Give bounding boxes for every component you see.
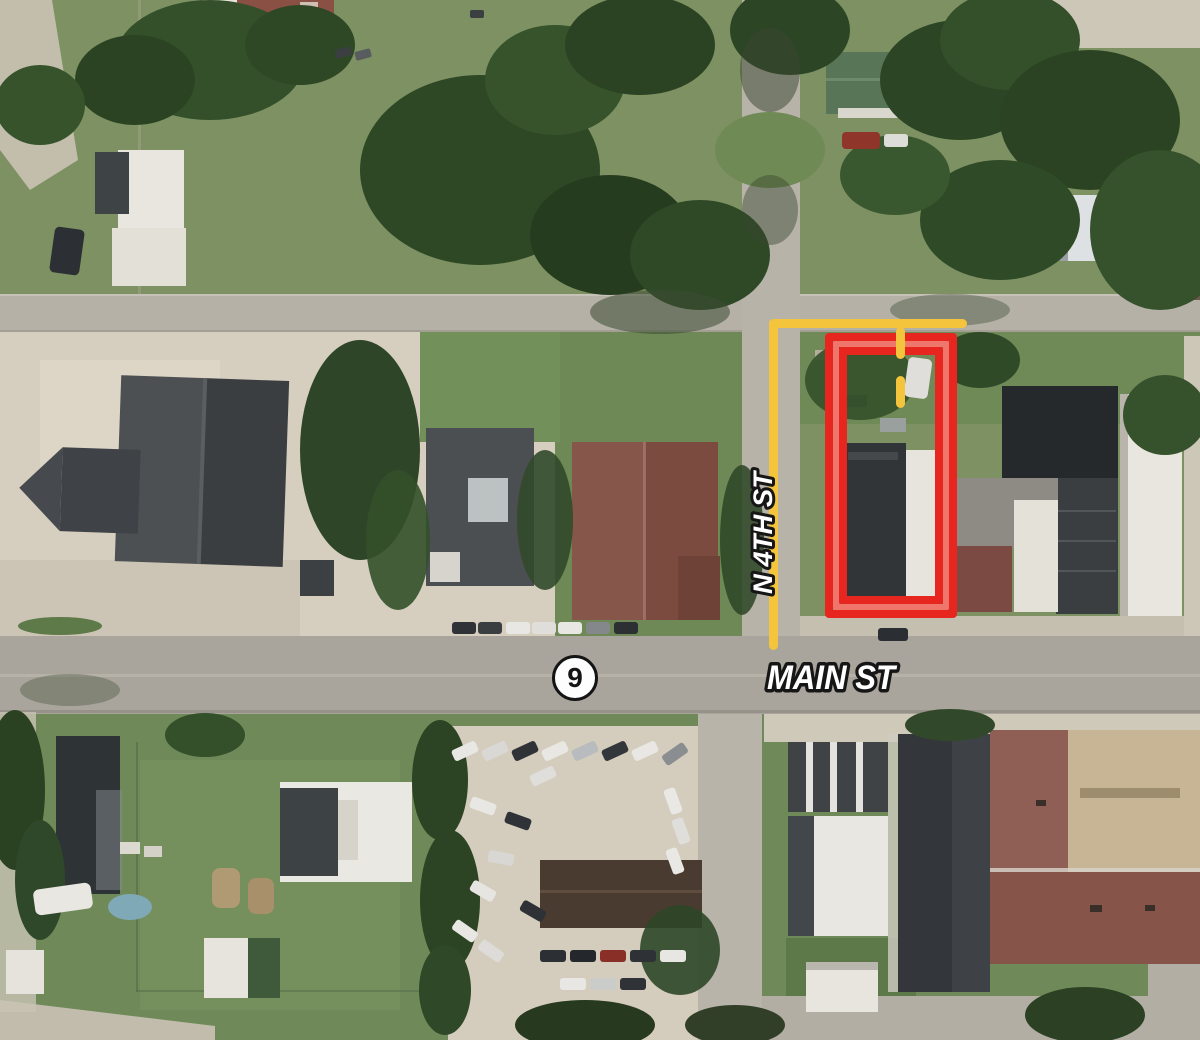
parcel-highlight-box — [825, 333, 957, 618]
street-label-n-4th-st-text: N 4TH ST — [748, 469, 778, 594]
route-9-badge: 9 — [552, 655, 598, 701]
alley-route-line — [769, 319, 967, 328]
satellite-imagery — [0, 0, 1200, 1040]
route-9-badge-number: 9 — [567, 662, 583, 694]
street-label-main-st-text: MAIN ST — [767, 659, 898, 697]
street-label-main-st: MAIN ST — [762, 656, 922, 702]
street-label-n-4th-st: N 4TH ST — [736, 450, 786, 600]
annotated-satellite-map: N 4TH ST MAIN ST 9 — [0, 0, 1200, 1040]
parcel-highlight-box-mid-stroke — [833, 341, 949, 610]
parcel-highlight-box-inner-stroke — [839, 347, 943, 604]
parcel-access-dash-1 — [896, 327, 905, 359]
parcel-access-dash-2 — [896, 376, 905, 408]
